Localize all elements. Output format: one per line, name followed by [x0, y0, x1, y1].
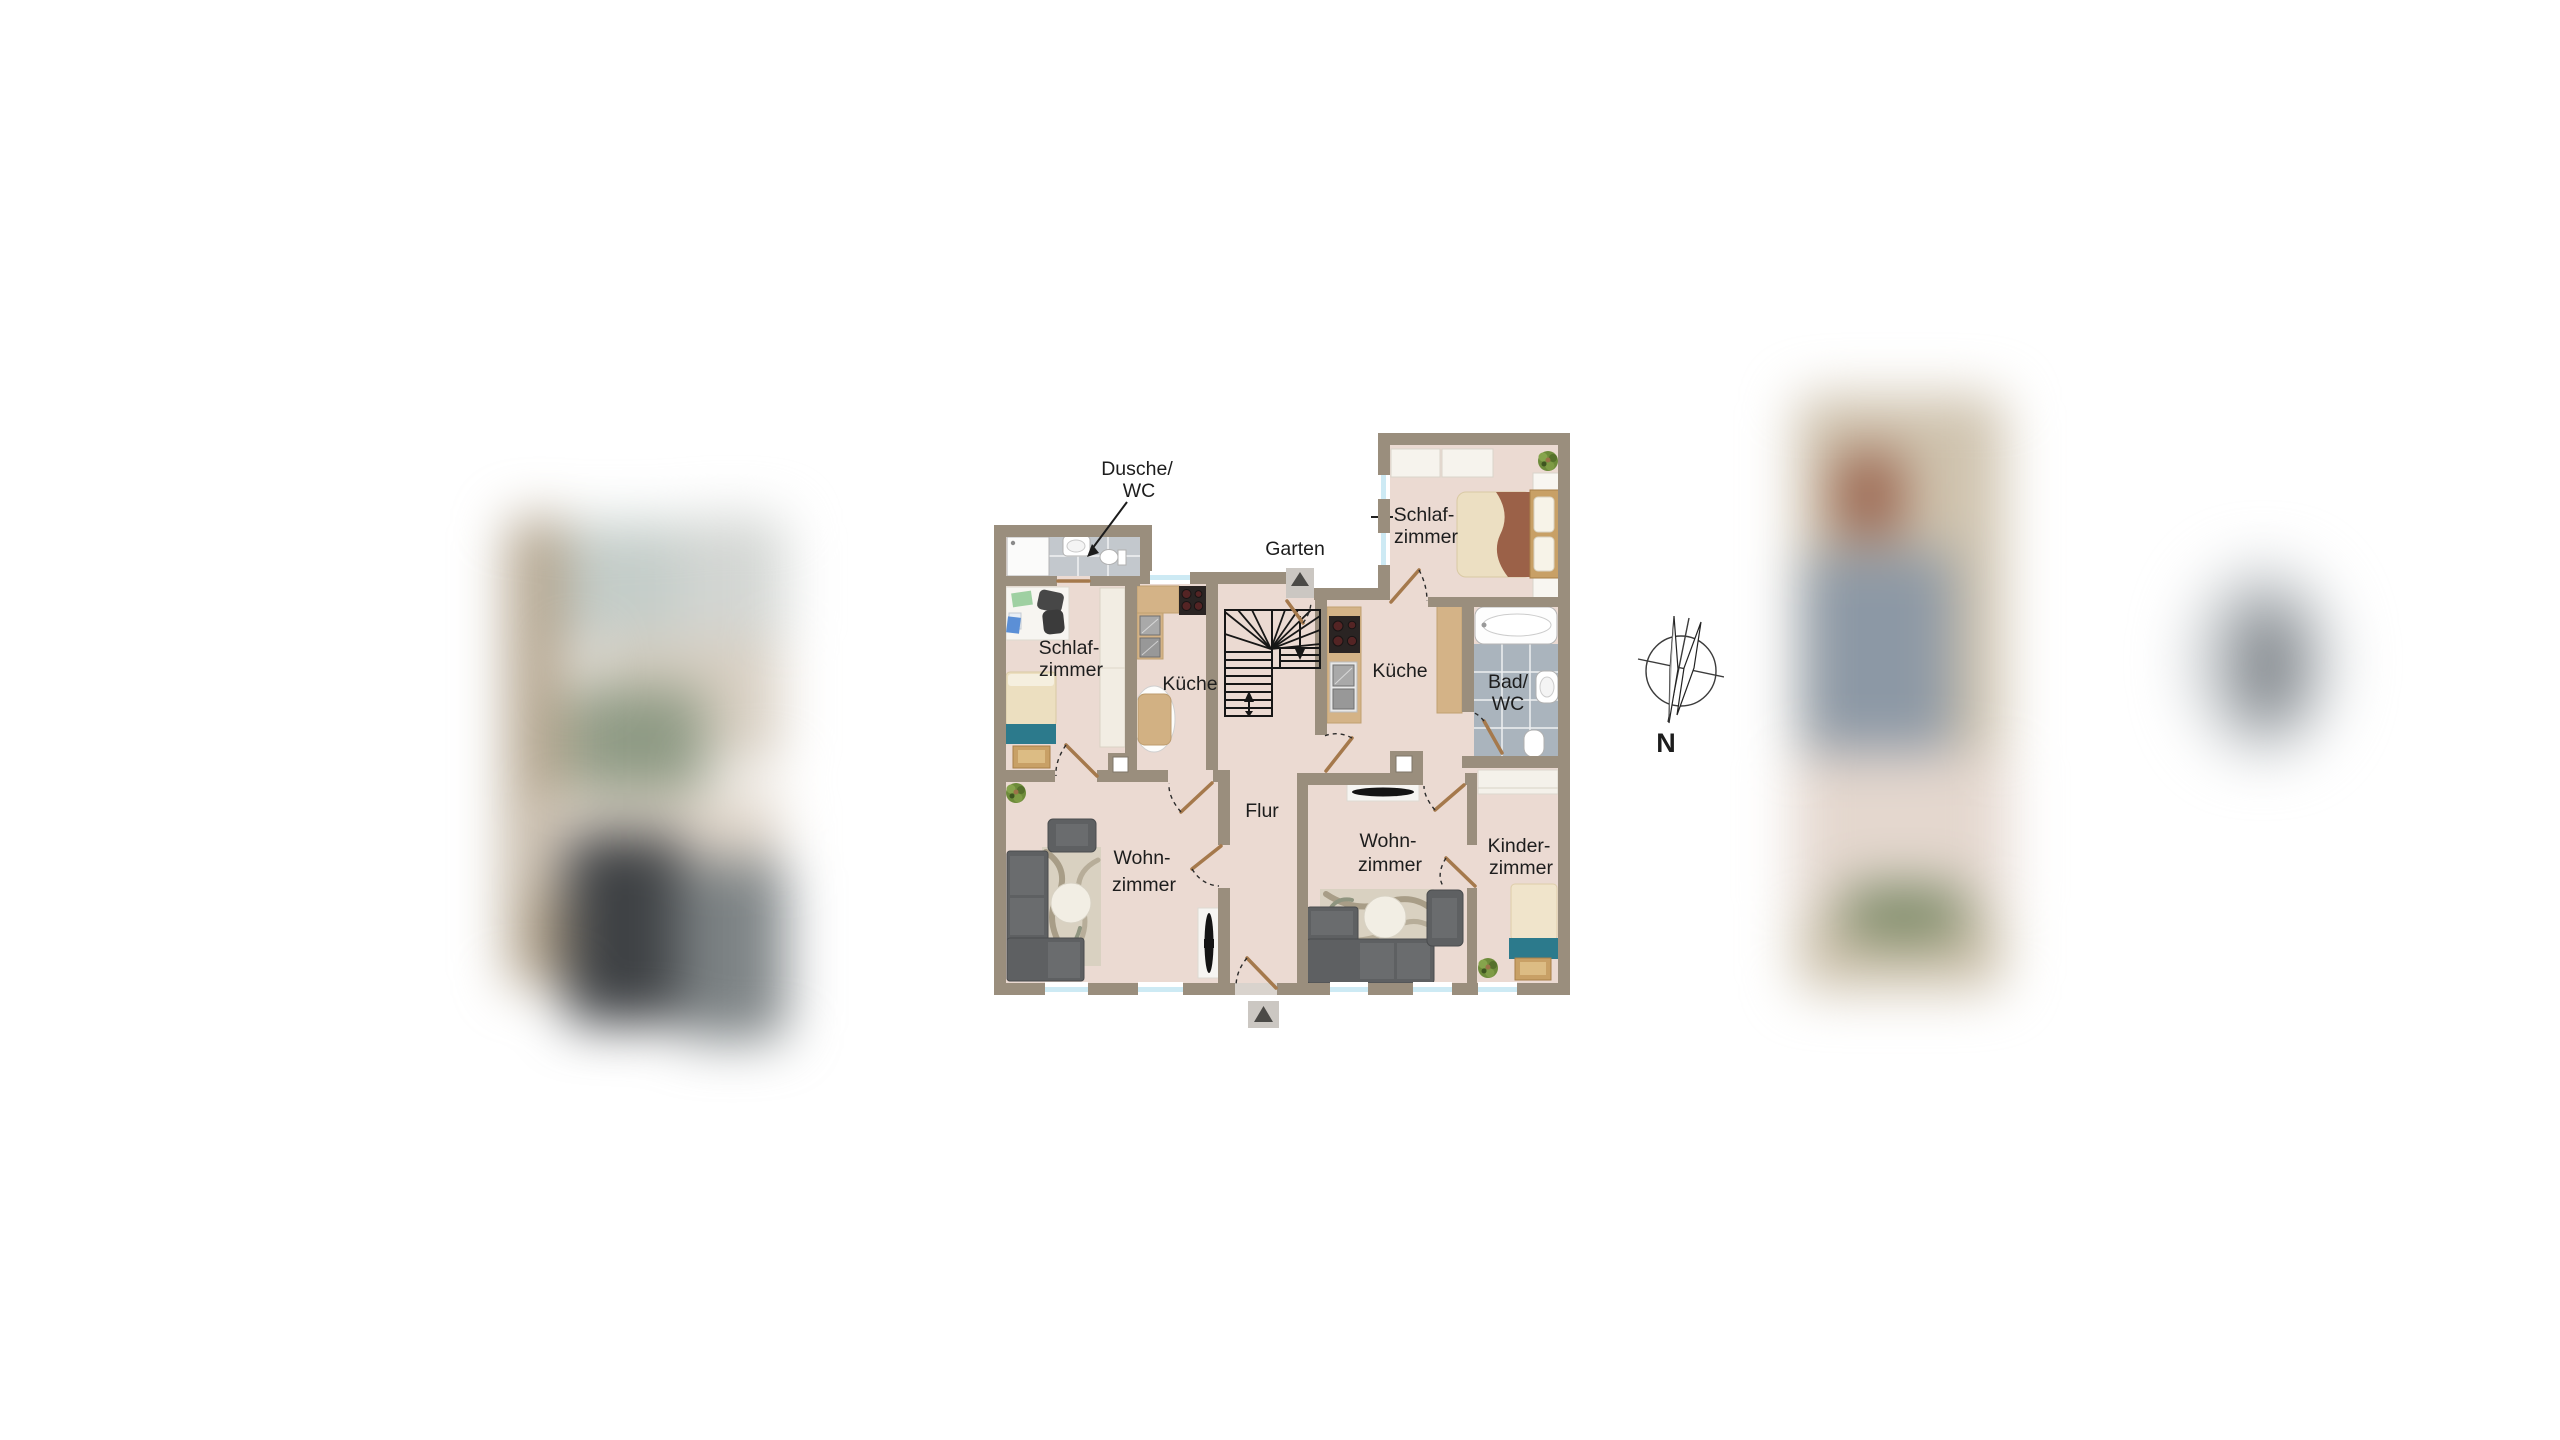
label-schlafzimmer-left-line1: Schlaf-: [1039, 637, 1100, 659]
label-dusche-wc-line2: WC: [1123, 480, 1156, 502]
label-kueche-right: Küche: [1372, 660, 1427, 682]
room-dusche-wc: [1007, 536, 1140, 576]
coffee-table: [1364, 896, 1406, 938]
nightstand: [1533, 578, 1559, 598]
wardrobe: [1442, 449, 1493, 477]
label-wohnzimmer-right-line1: Wohn-: [1359, 830, 1416, 852]
plant-icon: [1006, 783, 1026, 803]
toilet-icon: [1100, 550, 1126, 566]
bed: [1006, 672, 1056, 768]
armchair: [1427, 890, 1463, 946]
label-kinderzimmer-line2: zimmer: [1489, 857, 1553, 879]
label-schlafzimmer-right-line1: Schlaf-: [1394, 504, 1455, 526]
bathtub-icon: [1475, 607, 1557, 644]
window-icon: [1045, 982, 1088, 995]
label-wohnzimmer-left-line1: Wohn-: [1113, 847, 1170, 869]
blurred-photo-left: [480, 462, 795, 1047]
shower-icon: [1011, 541, 1015, 545]
window-icon: [1138, 982, 1183, 995]
page: { "floorplan": { "garten_label": "Garten…: [0, 0, 2560, 1440]
label-bad-wc-line1: Bad/: [1488, 671, 1529, 693]
double-bed: [1457, 490, 1560, 578]
window-icon: [1377, 533, 1390, 565]
label-dusche-wc-line1: Dusche/: [1101, 458, 1173, 480]
window-icon: [1377, 475, 1390, 499]
label-schlafzimmer-right-line2: zimmer: [1394, 526, 1458, 548]
label-flur: Flur: [1245, 800, 1279, 822]
label-schlafzimmer-left-line2: zimmer: [1039, 659, 1103, 681]
floor-plan: Dusche/ WC Garten Schlaf- zimmer Schlaf-…: [994, 420, 1724, 1060]
plant-icon: [1538, 451, 1558, 471]
coffee-table: [1051, 883, 1091, 923]
label-garten: Garten: [1265, 538, 1325, 560]
main-entrance-arrow: [1248, 1001, 1279, 1028]
label-wohnzimmer-right-line2: zimmer: [1358, 854, 1422, 876]
bed: [1509, 884, 1559, 980]
stove-icon: [1179, 586, 1206, 615]
label-kinderzimmer-line1: Kinder-: [1488, 835, 1551, 857]
garden-entrance-arrow: [1286, 568, 1314, 598]
wardrobe: [1478, 770, 1558, 794]
window-icon: [1330, 982, 1368, 995]
window-icon: [1150, 571, 1190, 584]
plant-icon: [1478, 958, 1498, 978]
compass-icon: N: [1638, 616, 1724, 758]
nightstand: [1533, 473, 1559, 492]
sink-icon: [1330, 662, 1357, 712]
armchair: [1048, 819, 1096, 852]
compass-north-label: N: [1656, 728, 1676, 758]
kitchen-table: [1133, 686, 1175, 752]
chimney-icon: [1113, 757, 1128, 772]
label-bad-wc-line2: WC: [1492, 693, 1525, 715]
chimney-icon: [1396, 756, 1412, 772]
label-kueche-left: Küche: [1162, 673, 1217, 695]
blurred-photo-right: [1788, 383, 2018, 1011]
blurred-object-far-right: [2168, 528, 2358, 783]
label-wohnzimmer-left-line2: zimmer: [1112, 874, 1176, 896]
tv: [1347, 784, 1419, 801]
tv: [1198, 908, 1220, 978]
window-icon: [1478, 982, 1517, 995]
window-icon: [1413, 982, 1452, 995]
wardrobe: [1391, 449, 1440, 477]
stove-icon: [1329, 616, 1360, 653]
toilet-icon: [1524, 730, 1544, 757]
